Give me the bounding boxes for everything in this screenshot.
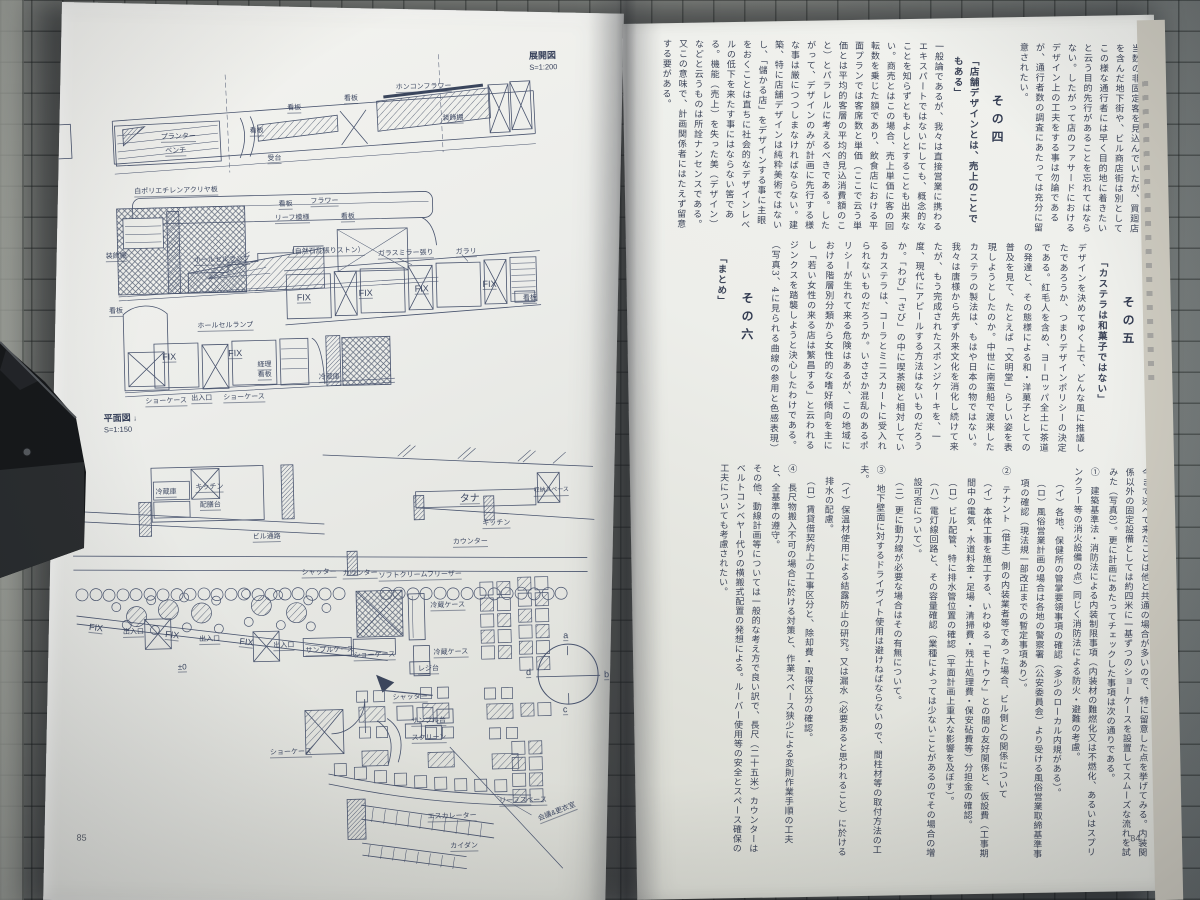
section-quote: 「カステラは和菓子ではない」: [1091, 243, 1111, 455]
body-text: ① 建築基準法・消防法による内装制限事項（内装材の難燃化又は不燃化、あるいはスプ…: [1065, 467, 1102, 863]
drawing-label: 収納スペース: [534, 487, 569, 497]
body-text: ③ 地下壁面に対するドライヴイト使用は避けねばならないので、間柱材等の取付方法の…: [851, 465, 888, 861]
drawing-label: プランター: [161, 133, 196, 143]
drawing-label: キッチン: [482, 519, 510, 529]
edge-print-marks: [1142, 80, 1154, 380]
drawing-label: カウンター: [343, 570, 378, 580]
drawing-label: FIX: [228, 350, 242, 359]
drawing-label: FIX: [297, 294, 311, 303]
drawing-label: スクリーン: [412, 734, 447, 744]
body-text: デザインを決めてゆく上で、どんな風に推議したであろうか、つまりデザインポリシーの…: [859, 241, 1086, 453]
floor-plan: [71, 440, 605, 880]
drawing-label: ショーケース: [270, 748, 312, 758]
drawing-label: 冷蔵庫: [319, 374, 340, 384]
elevation-strip-2: [116, 191, 438, 301]
drawing-label: 装飾棚: [106, 253, 127, 263]
body-text: （イ）保温材使用による結露防止の研究。又は漏水（必要あると思われること）に於ける…: [816, 464, 853, 860]
drawing-label: 看板: [250, 127, 264, 136]
drawing-label: FIX: [239, 638, 254, 649]
drawing-label: 看板: [341, 213, 355, 222]
drawing-label: FIX: [162, 354, 176, 363]
section-quote: 「まとめ」: [710, 239, 730, 451]
drawing-label: d: [526, 669, 531, 678]
drawing-label: 看板: [109, 308, 123, 317]
elevation-strip-4: [123, 300, 395, 397]
entrance-arrow: [376, 674, 394, 692]
drawing-label: ホールセルランプ: [194, 256, 250, 266]
photo-of-open-book: 展開図 S=1:200 平面図 ↓ S=1:150 ホンコンフラワー装飾棚看板看…: [0, 0, 1200, 900]
drawing-label: カウンター: [453, 538, 488, 548]
orientation-compass: [535, 643, 600, 705]
drawing-label: 出入口: [191, 395, 212, 405]
black-cassette-object: [0, 330, 120, 630]
drawing-label: ホンコンフラワー: [396, 83, 452, 93]
drawing-label: 看板: [287, 104, 301, 113]
drawing-label: FIX: [165, 631, 180, 642]
drawing-label: ±0: [178, 663, 187, 672]
drawing-label: ショーケース: [145, 397, 187, 407]
drawing-label: 配膳台: [200, 502, 221, 512]
body-text: 当数の非固定客を見込んでいたが、買廻店を含んだ地下街や、ビル商店街は別としてこの…: [1017, 43, 1140, 234]
drawing-label: c: [563, 706, 568, 715]
drawing-label: シャッター: [393, 694, 428, 704]
body-text: いささか混乱のあるポリシーが生れて来る危険はあるが、この地域における階層別分類か…: [768, 240, 869, 454]
drawing-label: カイダン: [450, 842, 478, 852]
drawing-label: ショーケース: [223, 393, 265, 403]
drawing-label: 受台: [267, 155, 281, 164]
drawing-label: サンプルケース: [305, 646, 354, 656]
left-page-drawings: 展開図 S=1:200 平面図 ↓ S=1:150 ホンコンフラワー装飾棚看板看…: [43, 2, 623, 900]
body-text: 一般論であるが、我々は直接営業に携わるエキスパートではないにしても、概念的なこと…: [787, 40, 943, 232]
right-page: 当数の非固定客を見込んでいたが、買廻店を含んだ地下街や、ビル商店街は別としてこの…: [622, 15, 1169, 900]
body-text: （ロ）風俗営業計画の場合は各地の警察署（公安委員会）より受ける風俗営業取締基準事…: [1011, 466, 1048, 862]
drawing-label: 看板: [344, 95, 358, 104]
drawing-label: b: [604, 671, 609, 680]
drawing-label: 出入口: [199, 636, 220, 646]
body-text: 建築、特に店舗デザインは純粋美術ではないし、「儲かる店」をデザインする事に主眼を…: [660, 39, 797, 230]
architectural-drawing: [43, 2, 623, 900]
text-tier-middle: その五「カステラは和菓子ではない」デザインを決めてゆく上で、どんな風に推議したで…: [645, 239, 1147, 456]
drawing-label: キッチン: [195, 483, 223, 493]
body-text: その他、動線計画等については一般的な考え方で良い訳で、長尺（二十五米）カウンター…: [711, 463, 765, 859]
drawing-label: 出入口: [123, 628, 144, 638]
drawing-label: タナ: [460, 495, 480, 504]
body-text: （イ）本体工事を施工する、いわゆる「モトウケ」との間の友好関係と、仮設費（工事期…: [958, 466, 995, 862]
drawing-label: （自然石乱張りストン）: [288, 247, 365, 258]
drawing-label: 冷蔵ケース: [430, 602, 465, 612]
text-tier-bottom: 今まで述べて来たことは他と共通の場合が多いので、特に留意した点を挙げてみる。内装…: [651, 463, 1153, 864]
drawing-label: レジ台: [418, 665, 439, 675]
text-tier-top: 当数の非固定客を見込んでいたが、買廻店を含んだ地下街や、ビル商店街は別としてこの…: [647, 39, 1143, 236]
body-text: （ニ）更に動力線が必要な場合はその有無について。: [886, 465, 907, 861]
drawing-label: シャッター: [301, 569, 336, 579]
drawing-label: ベンチ: [165, 147, 186, 157]
body-text: ② テナント（借主）側の内装業者等であった場合、ビル側との関係について: [993, 466, 1014, 862]
drawing-label: 冷蔵ケース: [433, 649, 468, 659]
page-number-left: 85: [76, 832, 86, 842]
drawing-label: フラワー: [310, 198, 338, 208]
drawing-label: 装飾棚: [442, 114, 463, 124]
section-heading: その六: [737, 240, 757, 452]
drawing-label: ガラスミラー張り: [378, 249, 434, 259]
drawing-label: エスカレーター: [427, 812, 476, 822]
body-text: 今まで述べて来たことは他と共通の場合が多いので、特に留意した点を挙げてみる。内装…: [1104, 467, 1150, 857]
section-heading: その五: [1118, 244, 1138, 456]
drawing-label: 看板: [523, 295, 537, 304]
body-text: （ロ）ビル配管、特に排水管位置の確認（平面計画上重大な影響を及ぼす）。: [939, 466, 960, 862]
drawing-label: a: [563, 632, 568, 641]
drawing-label: 経理: [257, 361, 271, 370]
body-text: （ハ）電灯線回路と、その容量確認（業種によっては少ないことがあるのでその場合の増…: [904, 465, 941, 861]
drawing-label: ホールセルランプ: [197, 322, 253, 332]
drawing-label: ビル通路: [253, 533, 281, 543]
drawing-label: FIX: [482, 281, 496, 290]
section-quote: 「店舗デザインとは、売上のことでもある」: [947, 42, 981, 234]
drawing-label: サンプル台: [411, 717, 446, 727]
drawing-label: ガラリ: [456, 248, 477, 258]
drawing-label: 冷蔵庫: [155, 489, 176, 499]
drawing-label: 出入口: [273, 642, 294, 652]
page-number-right: 84: [1130, 833, 1141, 844]
elevation-title: 展開図 S=1:200: [529, 50, 558, 73]
drawing-label: 看板: [258, 371, 272, 380]
drawing-label: ショーケース: [354, 651, 396, 661]
drawing-label: リーフ模様: [275, 214, 310, 224]
body-text: （ロ）賃貸借契約上の工事区分と、除却費・取得区分の確認。: [797, 464, 818, 860]
section-heading: その四: [988, 42, 1006, 234]
left-page: 展開図 S=1:200 平面図 ↓ S=1:150 ホンコンフラワー装飾棚看板看…: [43, 2, 624, 900]
body-text: （イ）各地、保健所の管掌要領事項の確認（多少のローカル内規がある）。: [1046, 467, 1067, 863]
drawing-label: FIX: [359, 290, 373, 299]
drawing-label: 看板: [278, 201, 292, 210]
drawing-label: FIX: [415, 285, 429, 294]
drawing-label: リーフスペース: [499, 797, 547, 807]
body-text: ④ 長尺物搬入不可の場合に於ける対策と、作業スペース狭少による変則作業手順の工夫…: [762, 464, 799, 860]
